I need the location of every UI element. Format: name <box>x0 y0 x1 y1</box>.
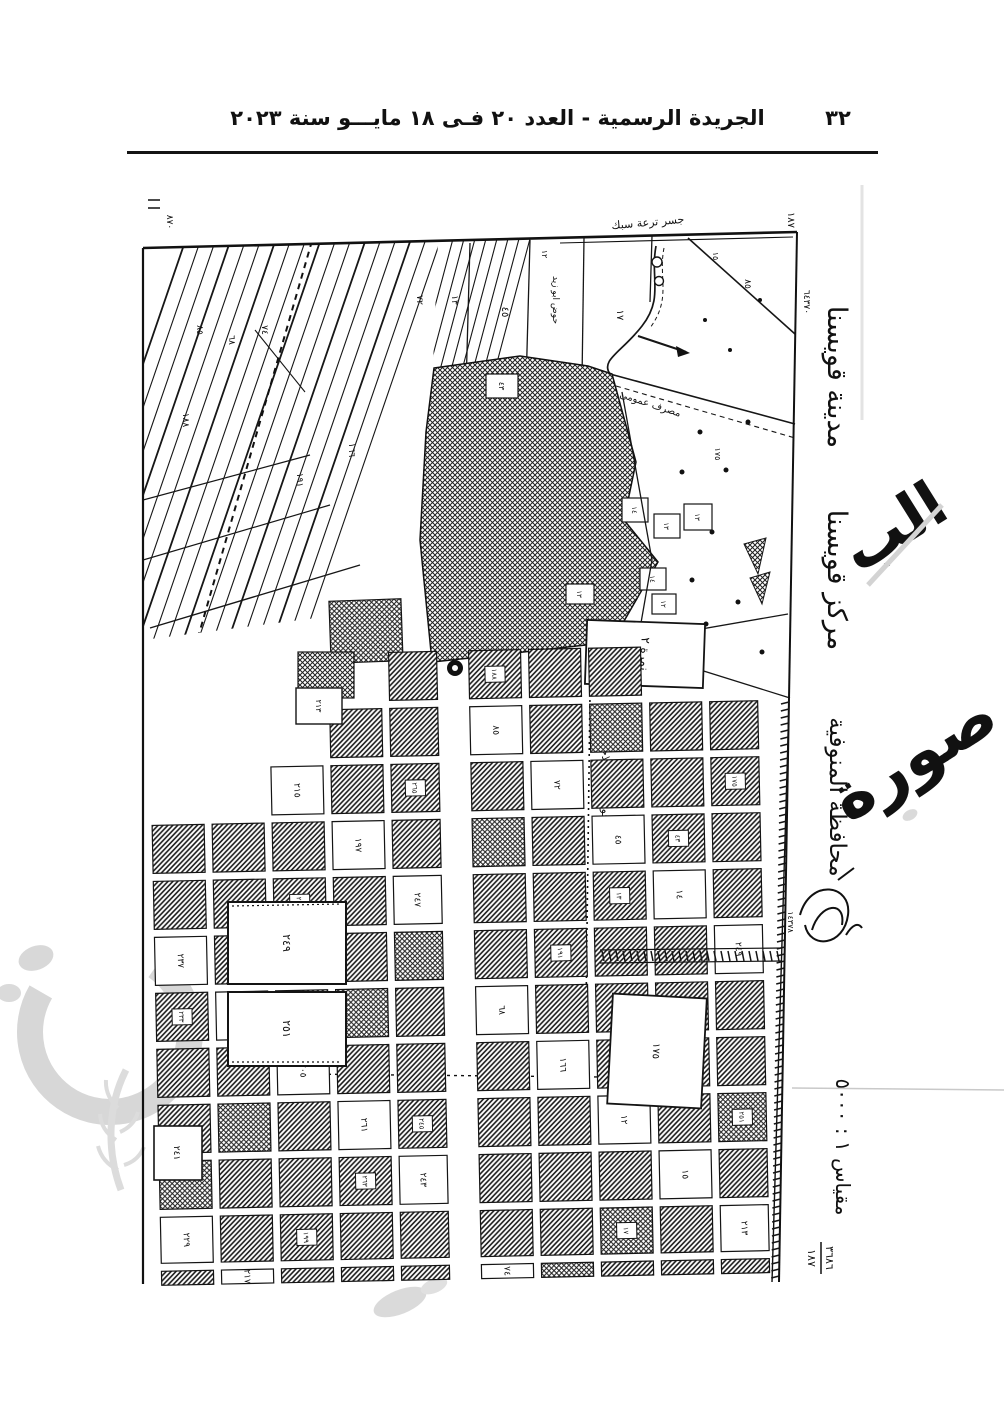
built-block <box>539 1152 592 1201</box>
fraction-numerator: ٣٦٨٦ <box>823 1246 836 1270</box>
border-tick <box>776 989 784 991</box>
border-tick <box>775 1038 783 1040</box>
border-tick <box>774 1115 782 1117</box>
built-block <box>218 1103 271 1152</box>
parcel-number: ١٧ <box>614 310 625 321</box>
built-block <box>651 758 704 807</box>
parcel-number: ١٨٨ <box>180 413 190 428</box>
border-tick <box>778 863 786 865</box>
border-tick <box>776 1010 784 1012</box>
parcel-number: ٢١٧ <box>241 1269 251 1284</box>
border-tick <box>774 1108 782 1110</box>
border-tick <box>775 1066 783 1068</box>
border-tick <box>778 870 786 872</box>
border-tick <box>775 1080 783 1082</box>
parcel-number: ٢٤٥ <box>417 1118 425 1130</box>
parcel-number: ١٦٦ <box>557 1058 567 1073</box>
border-tick <box>781 716 789 718</box>
border-tick <box>778 898 786 900</box>
built-block <box>599 1151 652 1200</box>
border-tick <box>774 1122 782 1124</box>
signature-scribble <box>800 868 862 941</box>
built-block <box>477 1042 530 1091</box>
parcel-number: ٧٢ <box>414 295 424 305</box>
built-block <box>717 1037 766 1086</box>
parcel-number: ٢٤٩ <box>280 934 293 952</box>
parcel-number: ٢١٣ <box>739 1221 749 1236</box>
parcel-number: ٨٥ <box>490 725 500 735</box>
built-block <box>530 704 583 753</box>
border-tick <box>776 1003 784 1005</box>
border-tick <box>775 1059 783 1061</box>
built-block <box>719 1149 768 1198</box>
built-block <box>341 1266 393 1281</box>
built-block <box>661 1260 713 1275</box>
built-block <box>713 869 762 918</box>
parcel-number: ١٤ <box>630 506 638 514</box>
field-strip-line <box>71 198 245 705</box>
built-block <box>601 1261 653 1276</box>
parcel-number: ٧٤ <box>259 325 269 335</box>
border-tick <box>781 723 789 725</box>
parcel-number: ١٩٩ <box>302 1232 310 1244</box>
sheet-number: ١٨٧ <box>785 212 796 229</box>
parcel-number: ٢١٥ <box>291 783 301 798</box>
parcel-number: ١٣ <box>693 513 701 521</box>
border-tick <box>781 730 789 732</box>
handwritten-note: مصرف عمومى <box>618 389 682 419</box>
border-tick <box>778 877 786 879</box>
parcel-number: ٦٨ <box>226 335 236 345</box>
parcel-number: ٢٢٩ <box>181 1232 191 1247</box>
built-block <box>660 1206 713 1253</box>
border-tick <box>773 1199 781 1201</box>
built-block <box>710 701 759 750</box>
built-block <box>473 874 526 923</box>
built-block <box>588 647 641 696</box>
built-block <box>161 1270 213 1285</box>
parcel-number: ١٢ <box>659 600 667 608</box>
border-tick <box>777 947 785 949</box>
built-block <box>278 1102 331 1151</box>
built-block <box>472 818 525 867</box>
scale-label: مقياس ١ : ٥٠٠٠ <box>831 1079 855 1216</box>
built-block <box>541 1262 593 1277</box>
border-tick <box>773 1192 781 1194</box>
built-block <box>392 819 441 868</box>
built-block <box>212 823 265 872</box>
border-tick <box>777 912 785 914</box>
parcel-number: ٢٣٧ <box>175 954 185 969</box>
built-block <box>712 813 761 862</box>
coordinate-label: ٦٤٣٧٠ <box>801 290 811 314</box>
built-block <box>394 931 443 980</box>
parcel-number: ١٦٦ <box>346 443 356 458</box>
built-block <box>340 1212 393 1259</box>
border-tick <box>773 1185 781 1187</box>
built-block <box>721 1259 769 1274</box>
field-strip-line <box>41 198 215 705</box>
border-tick <box>778 905 786 907</box>
parcel-number: ٤٣ <box>497 382 506 391</box>
parcel-number: ١٣ <box>449 295 459 305</box>
parcel-number: ٢٤٧ <box>412 893 422 908</box>
parcel-number: ١٧٥ <box>650 1043 662 1060</box>
built-block <box>390 707 439 756</box>
border-tick <box>776 968 784 970</box>
parcel-number: ١٧٥ <box>730 775 738 787</box>
border-tick <box>776 996 784 998</box>
border-tick <box>773 1164 781 1166</box>
border-tick <box>773 1171 781 1173</box>
border-tick <box>773 1178 781 1180</box>
parcel-number: ٦٨ <box>496 1005 506 1015</box>
parcel-number: ١٩١ <box>294 473 304 488</box>
built-block <box>272 822 325 871</box>
built-block <box>532 816 585 865</box>
built-block <box>331 765 384 814</box>
border-tick <box>776 982 784 984</box>
parcel-number: ١٣ <box>615 892 623 900</box>
built-block <box>157 1048 210 1097</box>
built-block <box>536 984 589 1033</box>
built-block <box>396 987 445 1036</box>
parcel-number: ٢١٣ <box>314 700 323 714</box>
built-block <box>538 1096 591 1145</box>
parcel-number: ٢٦٣ <box>360 1175 368 1187</box>
parcel-number: ٢٦٥ <box>410 782 418 794</box>
border-tick <box>773 1143 781 1145</box>
city-title: مدينة قويسنا <box>821 306 852 448</box>
gazette-page: الجريدة الرسمية - العدد ٢٠ فـى ١٨ مايـــ… <box>0 0 1004 1417</box>
parcel-number: ١٧ <box>622 1227 630 1235</box>
built-block <box>474 930 527 979</box>
border-tick <box>773 1150 781 1152</box>
built-block <box>219 1159 272 1208</box>
parcel-number: ٧٢ <box>551 780 561 790</box>
parcel-number: ٢٣٣ <box>177 1011 185 1023</box>
border-tick <box>774 1087 782 1089</box>
district-title: مركز قويسنا <box>821 510 852 651</box>
border-tick <box>775 1073 783 1075</box>
parcel-number: ٧٤ <box>501 1266 511 1276</box>
built-block <box>590 703 643 752</box>
built-block <box>281 1268 333 1283</box>
parcel-number: ٢٥١ <box>737 1111 745 1122</box>
built-block <box>480 1210 533 1257</box>
parcel-number: ٤٥ <box>499 307 510 318</box>
parcel-number: ١٩١ <box>556 947 564 958</box>
parcel-number: ١٣ <box>575 590 583 598</box>
parcel-number: ٢٤٣ <box>417 1172 427 1187</box>
border-tick <box>777 933 785 935</box>
border-tick <box>775 1052 783 1054</box>
border-tick <box>773 1157 781 1159</box>
hod-name: حوض ابو زيد <box>550 276 560 324</box>
parcel-number: ٢٤٩ <box>733 942 743 957</box>
built-block <box>397 1043 446 1092</box>
parcel-number: ٢٤١ <box>171 1146 181 1161</box>
corner-coordinate: ٨٧٠ <box>164 215 174 230</box>
built-block <box>529 648 582 697</box>
border-tick <box>775 1031 783 1033</box>
governorate-title: محافظة المنوفية <box>824 717 850 876</box>
border-tick <box>776 975 784 977</box>
built-block <box>533 872 586 921</box>
parcel-number: ١٧٥ <box>713 448 722 461</box>
built-block <box>389 651 438 700</box>
built-block <box>654 926 707 975</box>
parcel-number: ١٢ <box>540 250 549 259</box>
field-strip-line <box>161 198 335 705</box>
border-tick <box>774 1129 782 1131</box>
border-tick <box>774 1101 782 1103</box>
fraction-denominator: ١٨٧ <box>805 1249 818 1267</box>
handwritten-note: جسر ترعة سبك <box>611 213 685 232</box>
built-block <box>540 1208 593 1255</box>
border-tick <box>777 926 785 928</box>
parcel-number: ١٢ <box>618 1115 628 1125</box>
parcel-number: ١٨٨ <box>490 669 498 681</box>
parcel-number: ٤٥ <box>612 835 622 845</box>
parcel-number: ٢٥١ <box>280 1020 293 1038</box>
border-tick <box>776 1024 784 1026</box>
border-tick <box>778 891 786 893</box>
road-tick <box>770 951 772 961</box>
parcel-number: ١٣ <box>662 522 670 530</box>
built-block <box>220 1215 273 1262</box>
built-block <box>591 759 644 808</box>
parcel-number: ٤٣ <box>673 835 681 843</box>
cadastral-map: الب صورة ٨٥ ٦٨ ٧٤ ١٨٨ ١٩١ ١٦٦ ٧٢ ١٣ <box>0 0 1004 1417</box>
border-tick <box>780 744 788 746</box>
road-tick <box>777 951 779 961</box>
parcel-number: ٨٥ <box>742 279 752 289</box>
border-tick <box>781 702 789 704</box>
border-tick <box>780 737 788 739</box>
border-tick <box>778 884 786 886</box>
built-block <box>153 880 206 929</box>
built-block <box>152 824 205 873</box>
border-tick <box>777 919 785 921</box>
built-block <box>401 1265 449 1280</box>
parcel-number: ٨٥ <box>194 325 204 335</box>
border-tick <box>781 709 789 711</box>
coordinate-label: ١٤٣٧٨ <box>786 911 795 933</box>
built-block <box>716 981 765 1030</box>
border-tick <box>776 1017 784 1019</box>
parcel-number: ١٤ <box>674 889 684 899</box>
road-tick <box>651 951 653 961</box>
built-block <box>400 1211 449 1258</box>
field-strip-line <box>26 198 200 705</box>
built-block <box>478 1098 531 1147</box>
border-tick <box>774 1094 782 1096</box>
border-tick <box>775 1045 783 1047</box>
border-tick <box>774 1136 782 1138</box>
parcel-number: ١٩٧ <box>352 838 362 853</box>
parcel-number: ١٥ <box>679 1169 689 1179</box>
strip-numbers: ٨٥ ٦٨ ٧٤ ١٨٨ ١٩١ ١٦٦ ٧٢ ١٣ <box>180 295 459 487</box>
border-tick <box>777 940 785 942</box>
built-block <box>650 702 703 751</box>
built-block <box>279 1158 332 1207</box>
built-block <box>479 1154 532 1203</box>
parcel-number: ١٥ <box>711 252 720 261</box>
built-block <box>471 762 524 811</box>
parcel-number: ٢٦١ <box>358 1118 368 1133</box>
field-strip-dividers <box>143 220 360 700</box>
